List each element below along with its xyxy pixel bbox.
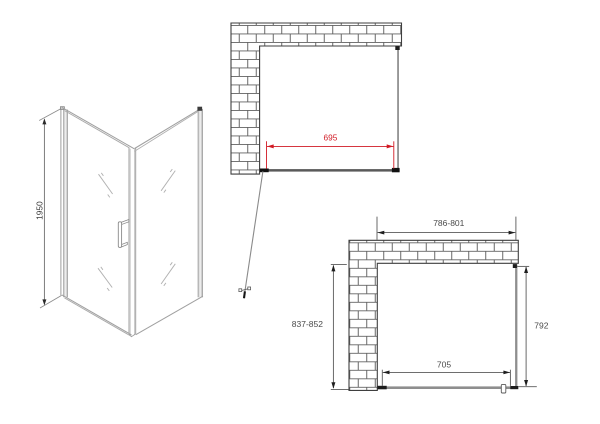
svg-text:1950: 1950: [34, 201, 44, 220]
svg-text:786-801: 786-801: [433, 218, 464, 228]
svg-text:792: 792: [534, 320, 548, 330]
svg-text:705: 705: [437, 359, 451, 369]
svg-text:695: 695: [323, 132, 337, 142]
svg-text:837-852: 837-852: [292, 319, 323, 329]
